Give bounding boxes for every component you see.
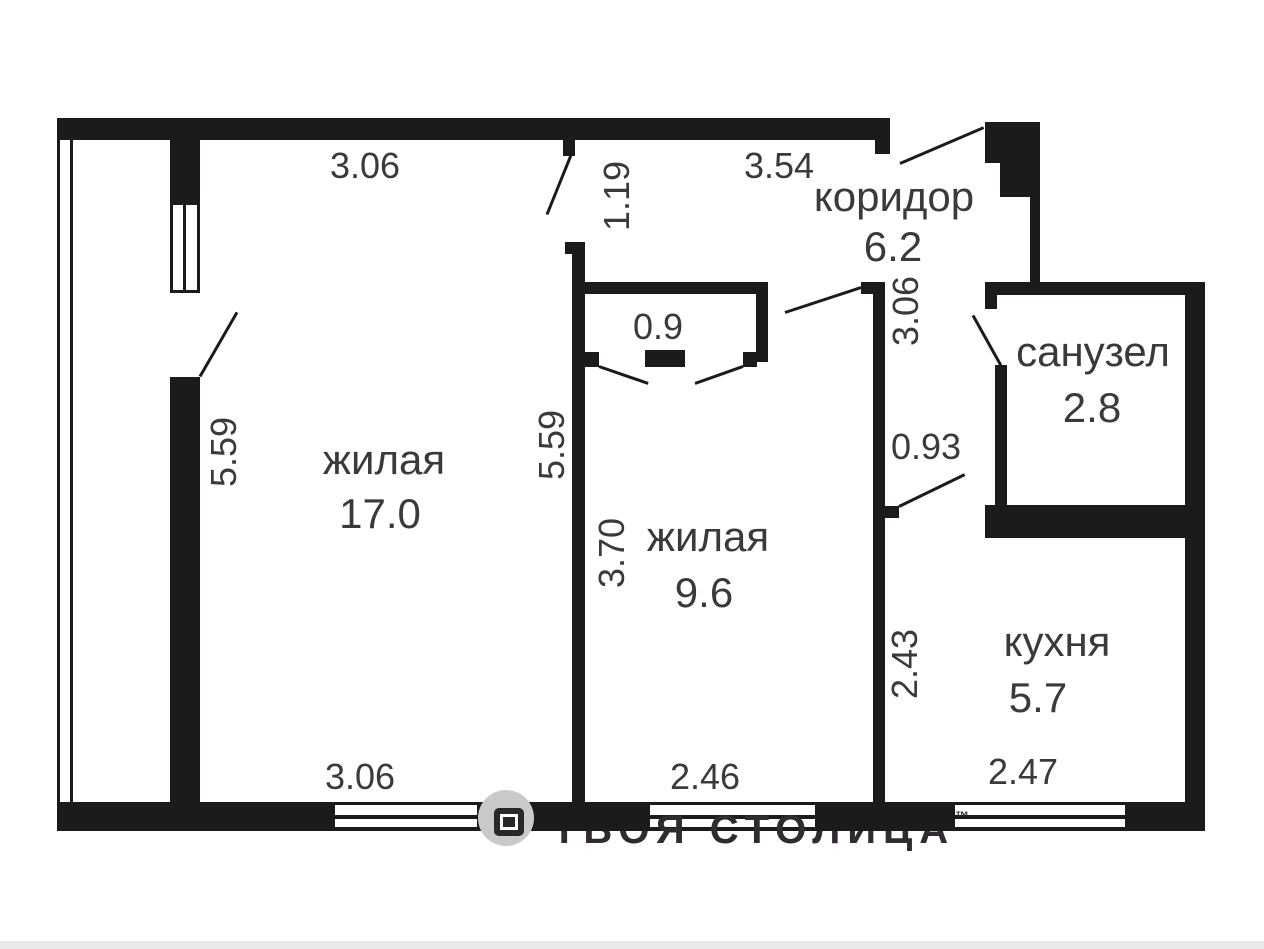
room-area-bathroom: 2.8 [1063, 384, 1121, 432]
dim-entry-opening: 1.19 [596, 161, 638, 231]
closet-door-leaf-left [599, 365, 649, 385]
bathroom-door-leaf [972, 315, 1002, 366]
entry-opening-leader-line [546, 155, 573, 215]
living2-door-leaf [785, 286, 862, 314]
wall-bottom-seg1 [57, 802, 335, 831]
dim-bottom-living1: 3.06 [325, 756, 395, 798]
dim-height-living2: 3.70 [591, 518, 633, 588]
room-label-bathroom: санузел [1016, 328, 1170, 376]
room-area-corridor: 6.2 [864, 223, 922, 271]
bathroom-top-wall [985, 282, 1205, 295]
room-area-living1: 17.0 [339, 490, 421, 538]
closet-jamb-left [585, 352, 599, 367]
watermark-logo-icon-inner [500, 814, 518, 830]
dim-kitchen-door: 0.93 [891, 426, 961, 468]
entrance-pier-upper [985, 122, 1040, 163]
balcony-window-mullion [183, 205, 186, 290]
closet-area: 0.9 [633, 306, 683, 348]
closet-top-wall [585, 282, 768, 294]
window-frame-line [330, 815, 477, 819]
entrance-door-leaf [899, 126, 984, 165]
footer-strip [0, 941, 1264, 949]
window-living1 [330, 802, 477, 831]
corridor-right-wall [1030, 197, 1040, 282]
window-kitchen [955, 802, 1125, 831]
closet-jamb-right [743, 352, 757, 367]
kitchen-passage-leader-line [898, 473, 965, 508]
watermark-logo-icon [494, 808, 524, 836]
dim-bottom-kitchen: 2.47 [988, 751, 1058, 793]
room-label-living1: жилая [323, 436, 445, 484]
watermark-tm: ™ [955, 808, 969, 824]
bathroom-top-tick [985, 295, 997, 309]
bathroom-left-wall [995, 365, 1007, 507]
room-label-kitchen: кухня [1004, 618, 1111, 666]
window-frame-line [955, 815, 1125, 819]
room-area-kitchen: 5.7 [1009, 674, 1067, 722]
dim-height-middle: 5.59 [531, 410, 573, 480]
closet-right-wall [756, 282, 768, 362]
closet-door-leaf-right [694, 365, 743, 385]
wall-top-end-tick [875, 140, 890, 154]
dim-top-corridor: 3.54 [744, 145, 814, 187]
balcony-partition-lower [170, 377, 200, 802]
wall-right [1185, 282, 1205, 831]
entrance-pier-lower [1000, 163, 1040, 197]
balcony-glazing-wall [57, 140, 73, 803]
dim-top-living1: 3.06 [330, 145, 400, 187]
closet-shelf [645, 350, 685, 367]
balcony-door-leader-line [199, 312, 239, 378]
room-label-corridor: коридор [814, 173, 974, 221]
dim-height-left: 5.59 [203, 417, 245, 487]
bathroom-bottom-wall [985, 505, 1205, 538]
room-label-living2: жилая [647, 513, 769, 561]
kitchen-passage-tick [873, 506, 899, 518]
room-area-living2: 9.6 [675, 569, 733, 617]
wall-bottom-seg3 [815, 802, 955, 831]
dim-height-kitchen: 2.43 [884, 629, 926, 699]
balcony-partition-upper [170, 118, 200, 202]
dim-height-corridor: 3.06 [885, 276, 927, 346]
balcony-window [170, 202, 200, 293]
divider-wall [572, 242, 585, 802]
dim-bottom-living2: 2.46 [670, 756, 740, 798]
floor-plan: ТВОЯ СТОЛИЦА™ 3.06 3.54 1.1 [0, 0, 1264, 949]
wall-living2-kitchen [873, 282, 885, 802]
